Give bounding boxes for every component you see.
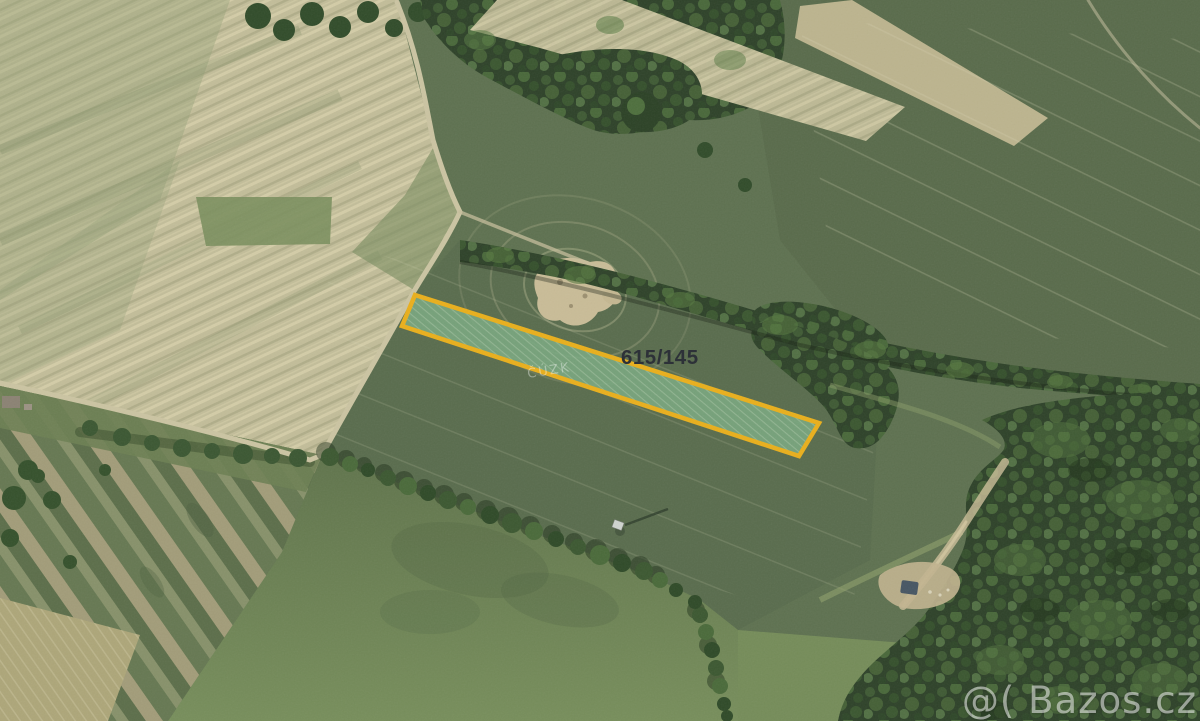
- parcel-label: 615/145: [621, 346, 699, 369]
- aerial-photo-scene: 615/145 ČÚZK: [0, 0, 1200, 721]
- satellite-map: 615/145 ČÚZK @( Bazos.cz: [0, 0, 1200, 721]
- photo-grain: [0, 0, 1200, 721]
